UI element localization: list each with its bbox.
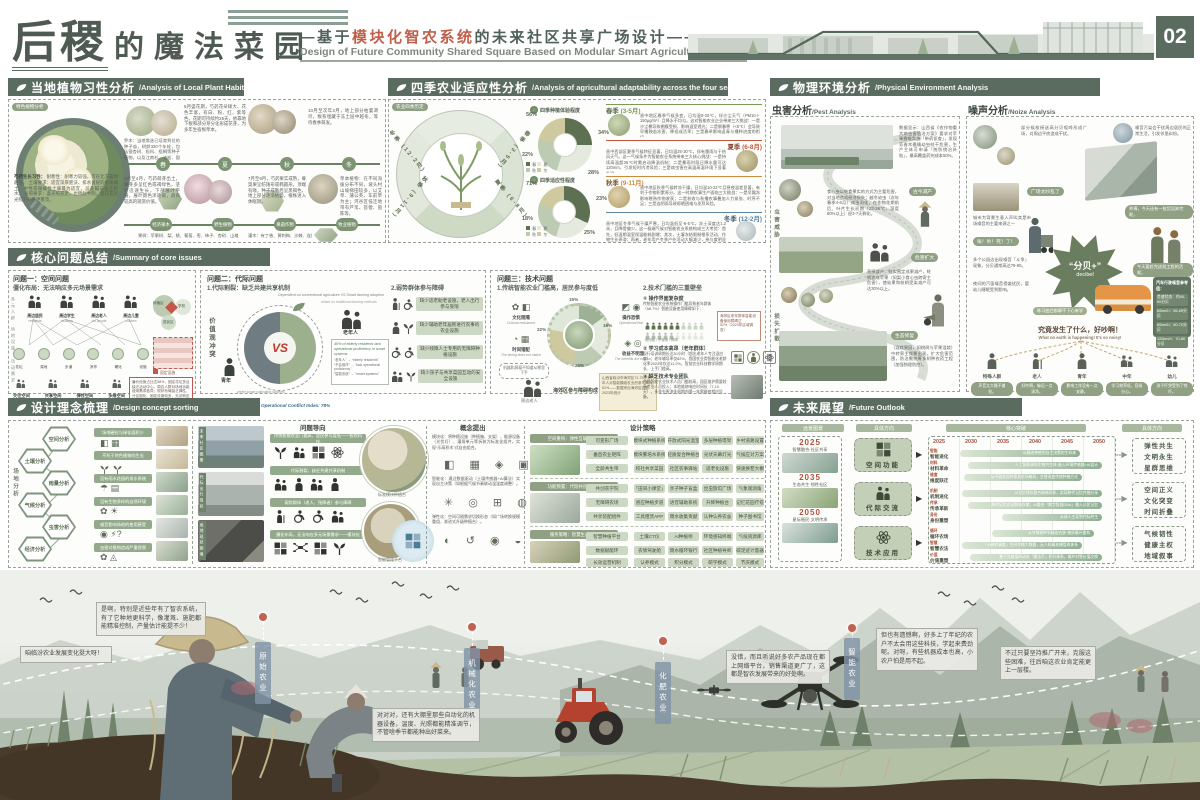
elevation-strip (688, 8, 1154, 60)
strategy-pill: 社区农事驿站 (668, 464, 699, 473)
future-col-head-1: 远景图景 (782, 424, 844, 432)
issue-icons-4: ✿ ☀ (100, 507, 118, 516)
vision-photo-3 (198, 520, 264, 562)
milestone-2025: 2025 智慧融合·社区共享 (781, 439, 839, 473)
panel-physical-env: 物理环境分析 /Physical Environment Analysis 虫害… (770, 78, 1194, 394)
site-issue-6: 虫害对植物造成严重侵害 (94, 543, 152, 552)
pest-building-banner (785, 157, 859, 165)
fixed-grid-legend: 固定设施 (153, 369, 175, 376)
noise-center-question: 究竟发生了什么，好吵啊！ What on earth is happening!… (1015, 325, 1145, 340)
problem-2: 代际割裂，缺乏共建共享机制 (270, 466, 366, 475)
season-node-summer: 夏 (218, 157, 232, 171)
plant-habits: 芍药生长习性： 耐寒性：耐寒力较强，可在北方露地越冬。 土壤要求：适宜深厚肥沃、… (14, 174, 118, 240)
dialog-bubble-4: 没错，而且听说好多农产品现在都上网络平台，销售渠道更广了，这都是智农发展带来的好… (726, 650, 830, 684)
strategy-sep-2 (530, 526, 764, 527)
pest-subheader: 虫害分析/Pest Analysis (772, 102, 856, 117)
people-icon (310, 478, 324, 491)
pest-wheelbarrow-figure (923, 293, 953, 327)
noise-workers-figures (1145, 225, 1185, 265)
needs-network (19, 319, 149, 345)
space-icon (47, 379, 59, 388)
strategy-pill: 积分模式 (668, 558, 699, 567)
plant-note-herb: 草本植物：在不同海拔分布不同，坡头村山坡梯田较多，以艾草、蒲公英、车前草为主；河… (340, 176, 382, 216)
group-note: 学习效率低，容易分心。 (1106, 382, 1148, 396)
ring-label-timing: ◔ ▦ 时间错配 The timing does not match (499, 329, 543, 357)
drone-icon (293, 542, 308, 553)
teacher-icon (750, 353, 757, 362)
problem-icons-3 (274, 510, 345, 523)
noise-subheader: 噪声分析/Noize Analysis (968, 102, 1055, 117)
noise-group-special: 特殊人群 声音太大睡不着觉。 (971, 353, 1013, 398)
frow-label-4: 机制机制进化 (930, 490, 948, 500)
strategy-lead: 共创农学院 (586, 484, 628, 493)
car-noise-title: 汽车行驶噪音参考值： (1156, 280, 1188, 292)
concept-2-icons: ✳ ◎ ⊞ ◍ (444, 498, 533, 509)
dir-space: 空间功能 (854, 438, 912, 472)
plant-photo (308, 174, 338, 204)
wall3-photo (731, 375, 763, 399)
season-spring-photo (608, 114, 630, 136)
group-name: 幼儿 (1151, 374, 1193, 380)
leaf-icon (16, 82, 27, 93)
crowd-icon (25, 295, 45, 308)
subtitle-prefix: ——基于 (282, 29, 352, 46)
vs-label: VS (272, 341, 288, 355)
type-node-4: 牧业植物 (336, 218, 358, 231)
panel-plant-habits: 当地植物习性分析 /Analysis of Local Plant Habits… (8, 78, 386, 244)
strategy-pill: 气候应对方案 (736, 450, 764, 459)
space-function-icon (876, 442, 891, 457)
sprout-icon (406, 371, 416, 382)
issue-icons-1: ◧ ▦ (100, 439, 120, 448)
children-icon (1165, 353, 1179, 369)
season-block-spring: 春季 (3-5月) 晋中地区春季气候多变，日均温8-20℃，伴沙尘天气（PM10… (606, 104, 762, 137)
crowd-icon (57, 295, 77, 308)
site-issue-4: 没有生物多样的自然环境 (94, 497, 152, 506)
timeline-dash-2 (472, 632, 473, 646)
strategy-pill: 研学模式 (702, 558, 733, 567)
milestone-2035-photo (782, 488, 838, 508)
season-node-autumn: 秋 (280, 157, 294, 171)
children-icon (391, 371, 404, 382)
season-block-winter: 冬季 (12-2月) 晋中地区冬季气候干燥严寒，日均温低至-8-5℃，冻土深度达… (606, 212, 762, 242)
issue3-sub1: 1.传统智能农业门槛高，居民参与度低 (497, 283, 598, 292)
outcome-box-1: 弹性共生文明永生星群思维 (1132, 438, 1186, 474)
season-node-winter: 冬 (342, 157, 356, 171)
benefit-icon: ◈ ◎ (624, 338, 641, 348)
strategy-pill: 「田间小课堂」 (634, 484, 665, 493)
vs-english-sub: reliant on traditional farming methods (321, 300, 401, 304)
concept-2: 智能化：通过数据驱动（土壤传感器+AI算法）实现自主决策（如根据气候节奏联动温湿… (432, 476, 520, 498)
noise-text-4: 多个公园边出现噪音「斗争」现象，分贝通常高达79-90。 (973, 257, 1029, 277)
strategy-pill: 适老化设施 (702, 464, 733, 473)
frow-bar-3: 从平面农园到垂直农场格局，交替改变传统种植方式 (964, 474, 1082, 481)
pest-text-2: 食心虫以蛀食果实的方式为主要危害，对当地造成经济损失；越冬幼虫（次年春季4-6月… (827, 189, 899, 233)
pest-insect-photo (801, 293, 815, 307)
sprout-icon (100, 465, 109, 474)
season-spring-text: 晋中地区春季气候多变，日均温8-20℃，伴沙尘天气（PM10＋150μg/m³）… (640, 113, 760, 137)
problem-4: 僵化布局，无法响应多元场景需求——模块化 (270, 530, 366, 539)
noise-tree-photo (973, 125, 997, 149)
tech-circle (392, 520, 434, 562)
milestone-2050-photo (782, 523, 838, 543)
plant-note-fruit: 果树：苹果树、梨、桃、葡萄、枣、柿子、杏树、山楂、猕猴桃；其中，苹果因其丰产稳产… (138, 233, 238, 242)
strategy-group-3-photo (530, 541, 580, 563)
module-icon (274, 542, 287, 555)
issue1-box: 问题一：空间问题 僵化布局：无法响应多元场景需求 多元人群 场地设施 活动需求 … (8, 270, 196, 394)
issue-photo-3 (156, 472, 188, 492)
elder-bubble: 机器和屏幕不知道从哪里下手 (499, 363, 549, 379)
strategy-pill: 农情驾驶舱 (634, 546, 665, 555)
page-header: 后稷的魔法菜园 ——基于模块化智农系统的未来社区共享广场设计—— Design … (0, 0, 1200, 72)
noise-text-5: 夜间的汽笛噪音侵袭扰民，婴幼儿睡眠受到影响。 (973, 281, 1029, 301)
rice-plant-illustration (433, 140, 489, 210)
panel-plant-title-en: /Analysis of Local Plant Habits (139, 83, 248, 92)
season-autumn-text: 晋中地区秋季气候转凉干燥，日均温10-22℃且昼夜温差显著，有利于作物积累养分。… (640, 185, 760, 209)
strategy-group-2-photo (530, 493, 580, 523)
sprout-icon (113, 465, 122, 474)
timeline-dot-3 (659, 637, 667, 645)
ring-label-culture: ✿ ◧ 文化阻隔 Cultural resistance (499, 297, 543, 325)
strategy-pill: 亲子种子盲盒 (668, 484, 699, 493)
walker-icon (274, 510, 287, 523)
page-number-badge: 02 (1156, 16, 1194, 58)
space-icon (79, 379, 91, 388)
problem-1: 传统智能农业门槛高，居民参与度低——智农科技 (270, 434, 366, 443)
problem-icons-2 (274, 478, 340, 491)
strategy-pill: 模块式种植系统 (634, 436, 665, 445)
strategy-pill: 认种认养农舍 (702, 512, 733, 521)
frow-bar-4: AI记忆保存整合情感同伴，实现跨代记忆共融分享 (962, 490, 1102, 497)
fixed-grid-diagram (153, 337, 193, 369)
issue-icons-6: ✿ ◬ (100, 553, 117, 562)
panel-physical-header: 物理环境分析 /Physical Environment Analysis (770, 78, 1100, 96)
generation-icon (875, 486, 892, 500)
leaf-icon (396, 82, 407, 93)
noise-group-child: 幼儿 孩子吓哭受到了惊吓。 (1151, 353, 1193, 398)
elevation-drawing (688, 8, 1154, 60)
concept-1-icons: ◧ ▦ ◈ ▣ (444, 460, 535, 471)
issue2-sub2: 2.弱势群体参与障碍 (391, 283, 444, 292)
outcome-box-2: 空间正义文化突变时间折叠 (1132, 482, 1186, 518)
panel-seasons-title-en: /Analysis of agricultural adaptability a… (532, 83, 749, 92)
pest-text-1: 数据显示：山西省《农作物重大病虫害防治方案》要求对苹果蠹蛾实施「带药侦查」，发现… (899, 125, 957, 183)
tech-icon (765, 353, 774, 362)
strategy-lead: 数据赋能环 (586, 546, 628, 555)
pest-couple-figures (869, 239, 891, 265)
subtitle-suffix: 的未来社区共享广场设计—— (475, 29, 703, 46)
render-circle-1-label: 标准模块种植台 (360, 492, 424, 498)
strategy-pill: 气象观测角 (736, 484, 764, 493)
noise-bench-photo (973, 183, 1019, 211)
strategy-pill: 轻质复合种植台 (668, 450, 699, 459)
site-issue-5: 噪音影响场地的使用感受 (94, 520, 152, 529)
strategy-lead: 长效运营机制 (586, 558, 628, 567)
frow-label-1: 智能智能进化 (930, 450, 948, 460)
pest-field-photo (779, 237, 863, 273)
noise-bubble-3: 唉！吵！死！了！ (973, 237, 1019, 246)
noise-analysis-box: 部分候校接送高分贝喧哗形成广场，对周边平房造成干扰。 噪音污染会干扰周边居民的正… (966, 116, 1194, 392)
strategy-pill: 校社共享菜园 (634, 464, 665, 473)
noise-market-photo (997, 147, 1015, 165)
barrier-donut (547, 303, 611, 367)
ring-v4: 25% (575, 363, 584, 368)
plant-note-winter: 10月至次年2月，地上部分枯萎凋尽，根系埋藏于冻土层中越冬，等待春季萌发。 (308, 108, 378, 148)
strategy-pill: 碳足迹计量器 (736, 546, 764, 555)
concept-3-icons: ◐ ↺ ◉ ◒ (444, 536, 527, 547)
type-node-2: 野生植物 (212, 218, 234, 231)
strategy-pill: 快速换茬大棚 (736, 464, 764, 473)
season-wheel-center (419, 133, 503, 217)
frow-bar-2: 人工智能调和生物共生体·嵌入环境传感器+AI设计 (968, 462, 1102, 469)
design-divider-1 (192, 426, 193, 564)
pest-insect-photo (781, 287, 797, 303)
dir-generation: 代际交流 (854, 482, 912, 516)
season-winter-text: 晋中地区冬季气候干燥严寒，日均温低至-8-5℃，冻土深度达1.2米，且降雪偏少。… (606, 221, 726, 242)
panel-design-header: 设计理念梳理 /Design concept sorting (8, 398, 260, 416)
donut2-legend: 春 夏 秋 冬 (526, 226, 548, 239)
title-main: 后稷 (12, 18, 108, 71)
concept-title: 概念提出 (460, 423, 486, 432)
group-note: 孩子吓哭受到了惊吓。 (1151, 382, 1193, 396)
noise-group-youth: 青年 影响工作没有一点安静。 (1061, 353, 1103, 398)
poster-subtitle-en: Design of Future Community Shared Square… (300, 46, 747, 62)
van-wheel-front (1103, 305, 1112, 314)
outcome-box-3: 气候韧性健康主权地域叙事 (1132, 526, 1186, 562)
pest-insect-photo (779, 179, 801, 201)
decibel-en: decibel (1055, 272, 1115, 278)
zone-label: 种植区 (153, 301, 164, 306)
dialog-bubble-6: 不过只要坚持推广开来，克服这些困难，往后咱这农业肯定能更上一层楼。 (1000, 646, 1096, 680)
poster-subtitle: ——基于模块化智农系统的未来社区共享广场设计—— (282, 26, 702, 47)
dialog-bubble-5: 但也有遗憾啊，好多上了年纪的农户不太会用这些科技，学起来费劲呢。对呀，有些机器成… (876, 628, 978, 671)
donut2-v1: 71% (526, 181, 537, 187)
strategy-pill: 感应种植步道 (634, 498, 665, 507)
plant-note-shrub: 灌木：有丁香、黄刺梅、沙棘、连翘、文冠果、忍冬、榆叶梅、野蔷薇、胡枝子、山荆子等… (248, 233, 312, 242)
car-noise-line2: 60km/h：55-65分贝 (1156, 308, 1188, 320)
problem-3: 弱势群体（老人、残障者）参与障碍 (270, 498, 366, 507)
youth-figure (223, 357, 236, 377)
facility-nodes: 花坛 菜地 步道 凉亭 硬化 设施 (13, 347, 149, 370)
space-needs: 交往空间 共享空间 弹性空间 多维空间 (13, 375, 125, 399)
vision-photo-2-tag: 代际出行现状 (199, 473, 206, 512)
leaf-icon (778, 402, 789, 413)
youth-note: prefer smart cultivation systems (237, 390, 285, 394)
donut1-legend: 春 夏 秋 冬 (526, 162, 548, 175)
ring-v1: 15% (569, 297, 578, 302)
ring-v3: 16% (603, 323, 612, 328)
person-icon (391, 322, 401, 334)
strategy-pill: 认养模式 (634, 558, 665, 567)
pest-insect-photo (797, 201, 813, 217)
stage-smart: 智能农业 (844, 638, 860, 700)
stat-gloss-3: “智能系统” → “smart systems” (334, 371, 386, 376)
frow-label-6: 身份身份重塑 (930, 514, 948, 524)
elder-label: 老年人 (343, 329, 358, 336)
plant-note-autumn: 7月至9月，芍药果实成熟，蓇葖果呈纺锤形或椭圆形，顶端有喙，种子成熟后呈黑褐色，… (248, 176, 306, 216)
noise-iso-block (1085, 141, 1157, 201)
space-icon (15, 379, 27, 388)
site-issue-2: 不利于特色植物的生长 (94, 451, 152, 460)
plant-photo (272, 110, 296, 134)
people-icon (293, 446, 306, 459)
issue-photo-5 (156, 518, 188, 538)
panel-design-concept: 设计理念梳理 /Design concept sorting 场地分析 空间分析… (8, 398, 766, 570)
dialog-bubble-2: 是啊，特别是近些年有了智农系统，有了它种地更科学，像灌溉、施肥都能精准控制，产量… (96, 602, 206, 636)
frow-bar-6: 从成人主导到代际共生 (1002, 514, 1102, 521)
arrow-6: --▶ (1116, 538, 1127, 547)
strategy-lead: 垂直农业矩阵 (586, 450, 628, 459)
group-name: 老人 (1016, 374, 1058, 380)
design-divider-3 (524, 426, 525, 564)
noise-city-photo (1113, 123, 1133, 143)
stat-box: 40% of elderly residents lack operationa… (331, 339, 389, 385)
issue1-sub: 僵化布局：无法响应多元场景需求 (13, 283, 103, 292)
pest-text-3: 直接减产：蛀实围定成果减产，蛀梢造成苹果（如梨小食心虫跨寄主危害），使幼果和枝梢… (867, 269, 931, 305)
issue3-sub2: 2.技术门槛的三重壁垒 (643, 283, 702, 292)
issue2-box: 问题二：代际问题 1.代际割裂：缺乏共建共享机制 2.弱势群体参与障碍 价值观冲… (200, 270, 486, 394)
decibel-star-label: “分贝+” decibel (1055, 259, 1115, 278)
strategy-pill: 节庆模式 (736, 558, 764, 567)
vision-photo-2 (198, 472, 264, 516)
decibel-zh: “分贝+” (1055, 259, 1115, 272)
sprout-icon (403, 323, 414, 334)
plant-note-spring: 3月至4月，芍药萌芽出土，嫩芽多呈红色或褐绿色，茎叶迅速生长，下部展叶平展，展叶… (124, 176, 180, 216)
subtitle-highlight: 模块化智农系统 (352, 29, 475, 46)
van-wheel-rear (1135, 305, 1144, 314)
cube-icon (405, 533, 421, 549)
site-issue-1: 场地硬化与绿化面积少 (94, 428, 152, 437)
type-node-3: 果蔬作物 (274, 218, 296, 231)
orange-van (1095, 285, 1151, 311)
strategy-pill: 环境感知终端 (702, 532, 733, 541)
wall1: ① 操作界面复杂度 传统智能农业系统操作门槛导致老年群体（58.7%）智能设备使… (643, 295, 763, 312)
group-name: 中年 (1106, 374, 1148, 380)
arrow-3: ▶ (916, 538, 922, 547)
plant-tag: 特色植物分析 (12, 103, 48, 111)
type-node-1: 经济果木 (150, 218, 172, 231)
dialog-bubble-3: 对对对，还有大棚里那些自动化的机器设备，温度、光照都能精准调节，不管啥季节都能种… (372, 708, 480, 742)
group-name: 特殊人群 (971, 374, 1013, 380)
barrier-row-2: 缺少辅助老年居民进行农事的农业设施 (391, 321, 483, 335)
frow-bar-8: 「AI神农调度」空间作物大数据，无人机精准播管收体系 (962, 542, 1082, 549)
panel-four-seasons: 四季农业适应性分析 /Analysis of agricultural adap… (388, 78, 766, 244)
strategy-pill: 乡村道路设置 (736, 436, 764, 445)
timeline-dot-4 (848, 624, 856, 632)
culture-icon: ✿ ◧ (512, 302, 531, 312)
panel-design-title: 设计理念梳理 (31, 399, 109, 416)
frow-label-3: 维度维度跃迁 (930, 474, 948, 484)
ring-v2: 22% (537, 327, 546, 332)
person-icon (1076, 353, 1088, 369)
frow-bar-9: 基于贡献值的动态「魔法币」积分体系，城乡对等价值交换 (970, 554, 1102, 561)
person-icon (986, 353, 998, 369)
design-side-label: 场地分析 (11, 468, 19, 498)
pest-side-label-2: 损失扩散 (772, 313, 780, 343)
arrow-5: --▶ (1116, 494, 1127, 503)
strategy-pill: 升降种植台 (702, 498, 733, 507)
design-divider-2 (426, 426, 427, 564)
barrier-row-1: 缺少适老助老设施，老人出行参与受限 (391, 297, 483, 311)
issue-photo-2 (156, 449, 188, 469)
group-note: 声音太大睡不着觉。 (971, 382, 1013, 396)
season-wheel: 春季 (3-5月) 夏季 (6-8月) 秋季 (9-11月) 冬季 (12-2月… (396, 110, 524, 238)
year-2045: 2045 (1061, 439, 1073, 445)
donut1-v1: 56% (526, 112, 537, 118)
noise-bubble-1: 广场太吵乱了 (1027, 187, 1064, 196)
strategy-pill: 雨水收集贡献 (668, 512, 699, 521)
strategy-pill: 语音辅助系统 (668, 498, 699, 507)
timing-icon: ◔ ▦ (513, 334, 529, 344)
car-noise-box: 汽车行驶噪音参考值： 怠速状态：约40-50分贝 60km/h：55-65分贝 … (1153, 277, 1191, 337)
timeline-dot-1 (259, 613, 267, 621)
strategy-pill: 昆虫旅馆广场 (702, 484, 733, 493)
issue2-left-label: 价值观冲突 (207, 317, 216, 359)
elder-figures (521, 379, 545, 397)
sprout-icon (333, 542, 346, 555)
problem-icons-1 (274, 446, 344, 459)
strategy-pill: 气候资源库 (736, 532, 764, 541)
stage-fertilizer: 化肥农业 (655, 662, 671, 724)
timeline-dash-3 (663, 646, 664, 660)
stat-gloss-2: “不会操作” → “lack operational proficiency” (334, 362, 386, 371)
panel-seasons-title: 四季农业适应性分析 (411, 79, 528, 96)
noise-center-zh: 究竟发生了什么，好吵啊！ (1015, 325, 1145, 335)
panel-issues-title: 核心问题总结 (31, 249, 109, 266)
vision-photo-1-tag: 未来社区图景 (199, 427, 206, 466)
season-autumn-photo (608, 186, 630, 208)
zone-label: 居民区 (163, 320, 174, 325)
pest-analysis-box: 数据显示：山西省《农作物重大病虫害防治方案》要求对苹果蠹蛾实施「带药侦查」，发现… (770, 116, 960, 392)
stage-primitive: 原始农业 (255, 642, 271, 704)
concept-3: 弹性化：空间可随需求切换形态（如广场转换规模重组、渐进式升级种植台）。 (432, 514, 520, 534)
pest-pill-2: 危害扩大 (911, 253, 938, 262)
strategy-pill: 土壤CT仪 (634, 532, 665, 541)
panel-plant-title: 当地植物习性分析 (31, 79, 135, 96)
bottom-montage: 原始农业 机械化农业 化肥农业 智能农业 咱临汾农业发展变化挺大呀！ 是啊，特别… (0, 570, 1200, 800)
donut2-v4: 18% (522, 216, 533, 222)
vision-photo-3-tag: 场地现状困境 (199, 521, 206, 560)
strategy-pill: 开放式阳光温室 (668, 436, 699, 445)
title-decor-lines (228, 10, 348, 25)
season-block-summer: 夏季 (6-8月) 晋中西部区夏季气候特征显著，日均温25-30℃，伴有雷雨与干… (606, 140, 762, 173)
wall1-side-note: 海郊区老年群体智能设备使用障碍达52%（2023年区域调查） (717, 311, 761, 341)
issue-icons-5: ◉ ⚡? (100, 530, 122, 539)
car-noise-line1: 怠速状态：约40-50分贝 (1156, 294, 1188, 306)
poster-page: { "header": { "title_main": "后稷", "title… (0, 0, 1200, 800)
flower-photo (37, 135, 71, 165)
group-note: 好吵啊，躲远一点清净。 (1016, 382, 1058, 396)
frow-label-2: 材料材料革命 (930, 462, 948, 472)
noise-group-elder: 老人 好吵啊，躲远一点清净。 (1016, 353, 1058, 398)
panel-design-title-en: /Design concept sorting (113, 403, 198, 412)
module-icon (312, 446, 325, 459)
year-2035: 2035 (997, 439, 1009, 445)
pair-icon (1120, 353, 1134, 369)
strategy-sep-1 (530, 478, 764, 479)
module-icon (314, 542, 327, 555)
panel-seasons-header: 四季农业适应性分析 /Analysis of agricultural adap… (388, 78, 728, 96)
elder-icon (391, 298, 401, 310)
strategy-lead: 无障碍农场 (586, 498, 628, 507)
strategy-pill: 记忆花园疗愈 (736, 498, 764, 507)
barrier-row-4: 缺少孩子与共享菜园互动的安全设施 (391, 369, 483, 383)
frow-label-7: 循环循环农场 (930, 530, 948, 540)
panel-issues-header: 核心问题总结 /Summary of core issues (8, 248, 270, 266)
strategy-lead: 全龄共生带 (586, 464, 628, 473)
site-issue-3: 没有雨水花园的排水系统 (94, 474, 152, 483)
frow-bar-7: 从节律耕种到精准农源·物质循环重构 (992, 530, 1094, 537)
